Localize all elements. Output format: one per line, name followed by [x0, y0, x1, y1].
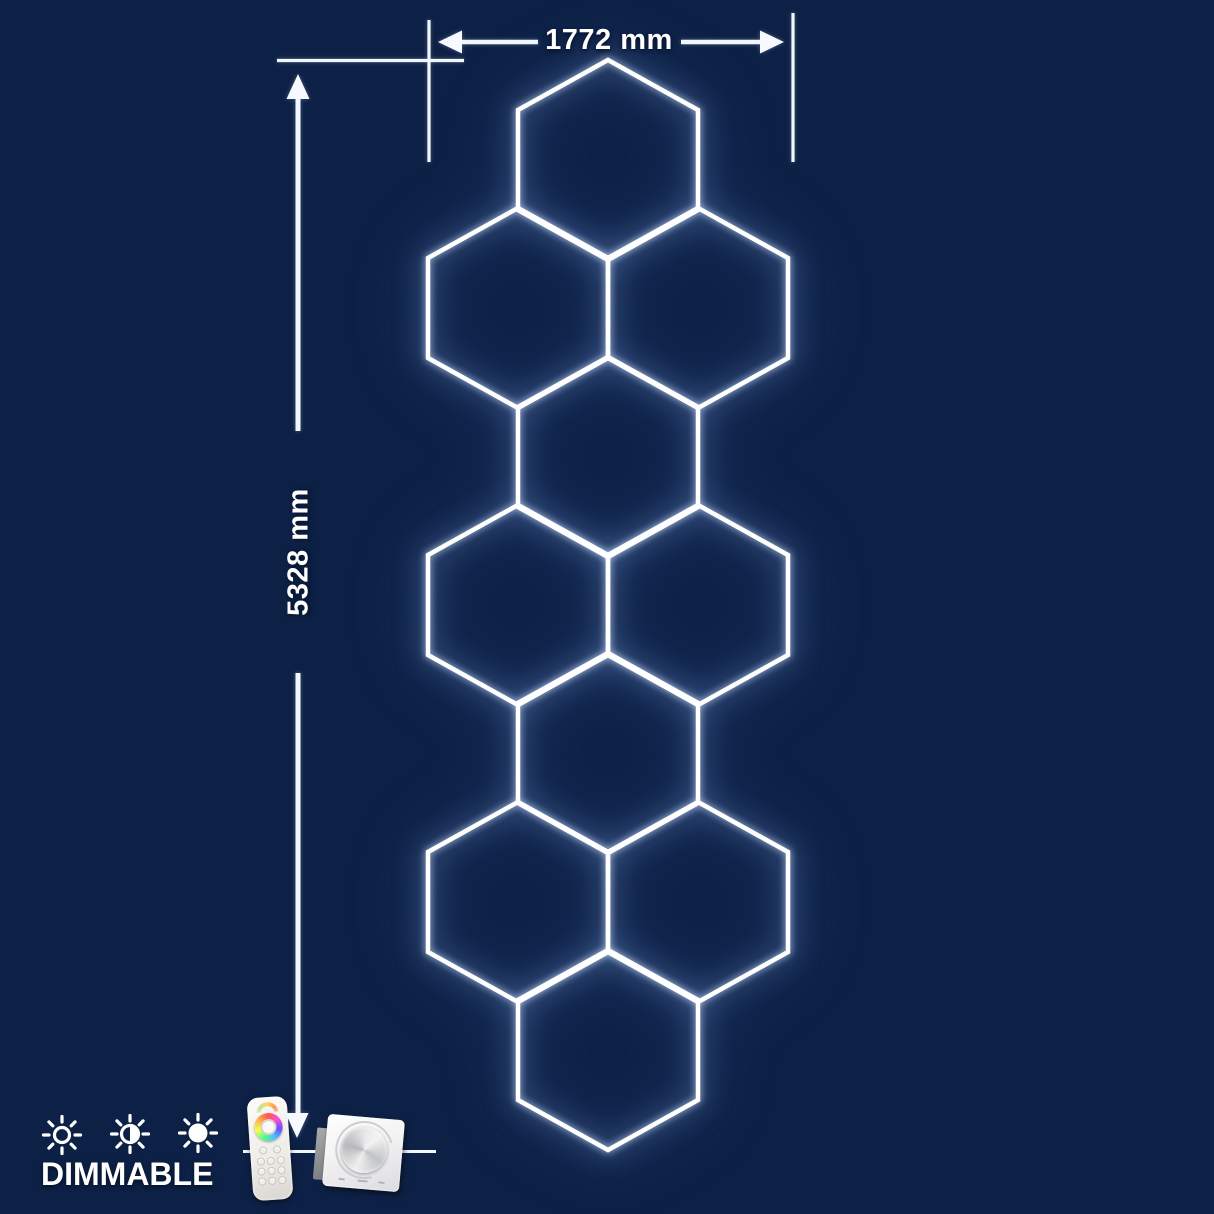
height-arrow-down-head — [286, 1113, 309, 1138]
hexagon-panel — [608, 208, 788, 408]
hexagon-panel — [518, 653, 698, 853]
hex-grid-svg — [0, 0, 1214, 1214]
stage: 1772 mm 5328 mm DIMMABLE — [0, 0, 1214, 1214]
hexagon-panel — [608, 802, 788, 1002]
hexagon-panel — [518, 357, 698, 557]
height-arrow-up-head — [287, 74, 310, 99]
hexagon-panel — [608, 505, 788, 705]
hexagon-panel — [428, 802, 608, 1002]
width-dimension-label: 1772 mm — [529, 24, 689, 57]
hexagon-panel — [518, 950, 698, 1150]
height-dimension-label: 5328 mm — [283, 488, 316, 616]
width-arrow-right-head — [760, 31, 784, 54]
dimension-layer — [277, 13, 793, 1138]
hexagon-panel — [518, 60, 698, 260]
hexagon-layer — [428, 60, 788, 1150]
hexagon-panel — [428, 208, 608, 408]
width-arrow-left-head — [438, 31, 462, 54]
hexagon-panel — [428, 505, 608, 705]
